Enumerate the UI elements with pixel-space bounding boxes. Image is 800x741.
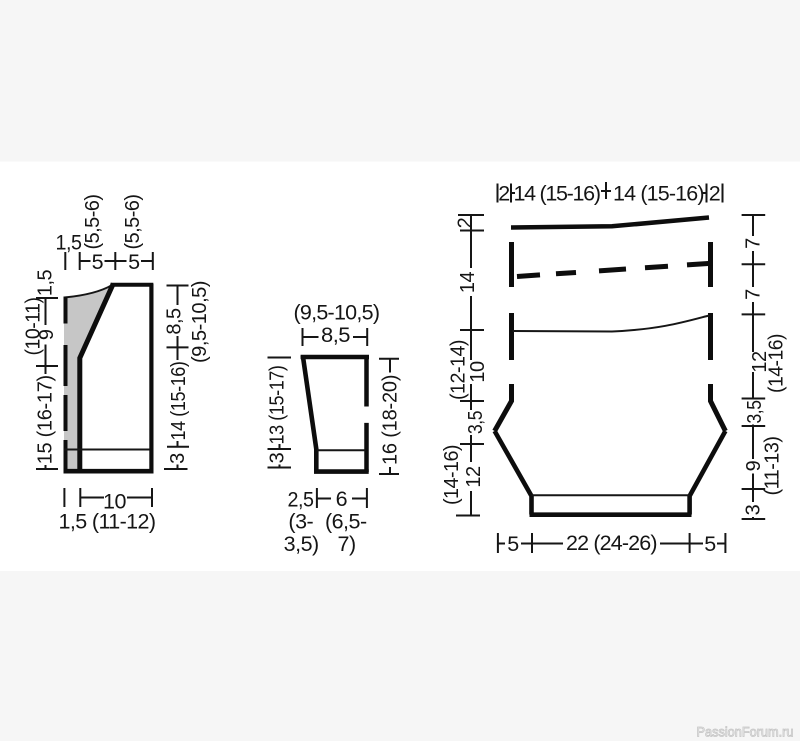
svg-text:2: 2 [455,217,477,228]
svg-text:12: 12 [463,466,485,488]
svg-text:(3-: (3- [288,510,313,534]
svg-text:7: 7 [743,289,765,300]
svg-text:3,5): 3,5) [284,532,319,556]
svg-text:PassionForum.ru: PassionForum.ru [697,724,794,740]
svg-text:14: 14 [457,272,479,294]
svg-text:(6,5-: (6,5- [325,510,367,534]
svg-text:2: 2 [498,182,509,206]
svg-text:(14-16): (14-16) [441,445,463,505]
svg-text:(9,5-10,5): (9,5-10,5) [294,301,380,325]
svg-text:3,5: 3,5 [465,411,487,434]
svg-text:3,5: 3,5 [744,400,766,423]
svg-text:(11-13): (11-13) [762,437,784,496]
svg-text:14 (15-16): 14 (15-16) [168,362,190,441]
svg-text:3: 3 [267,452,289,463]
svg-text:8,5: 8,5 [321,323,351,347]
svg-text:16 (18-20): 16 (18-20) [380,375,402,465]
svg-text:14 (15-16): 14 (15-16) [613,182,704,206]
svg-text:(10-11): (10-11) [23,298,45,356]
svg-text:5: 5 [704,532,716,556]
svg-text:5: 5 [507,532,519,556]
svg-text:14 (15-16): 14 (15-16) [514,182,601,206]
svg-text:3: 3 [167,453,189,464]
svg-text:5: 5 [92,250,104,274]
svg-text:8,5: 8,5 [164,308,186,335]
svg-text:(9,5-10,5): (9,5-10,5) [189,281,211,363]
svg-text:13 (15-17): 13 (15-17) [267,366,289,445]
svg-text:6: 6 [336,487,348,511]
svg-text:1,5 (11-12): 1,5 (11-12) [59,510,156,534]
svg-text:(12-14): (12-14) [448,340,470,400]
svg-text:(14-16): (14-16) [766,334,788,393]
svg-text:3: 3 [743,504,765,515]
svg-text:(5,5-6): (5,5-6) [122,195,144,250]
svg-text:7: 7 [743,238,765,249]
svg-text:2: 2 [709,182,720,206]
svg-text:10: 10 [467,361,489,383]
svg-text:22 (24-26): 22 (24-26) [566,531,657,555]
svg-text:5: 5 [128,250,140,274]
svg-text:1,5: 1,5 [35,269,57,296]
svg-text:15 (16-17): 15 (16-17) [35,375,57,464]
svg-text:7): 7) [338,532,356,556]
svg-text:1,5: 1,5 [56,231,82,255]
svg-text:2,5: 2,5 [288,488,314,512]
svg-text:(5,5-6): (5,5-6) [82,195,104,250]
